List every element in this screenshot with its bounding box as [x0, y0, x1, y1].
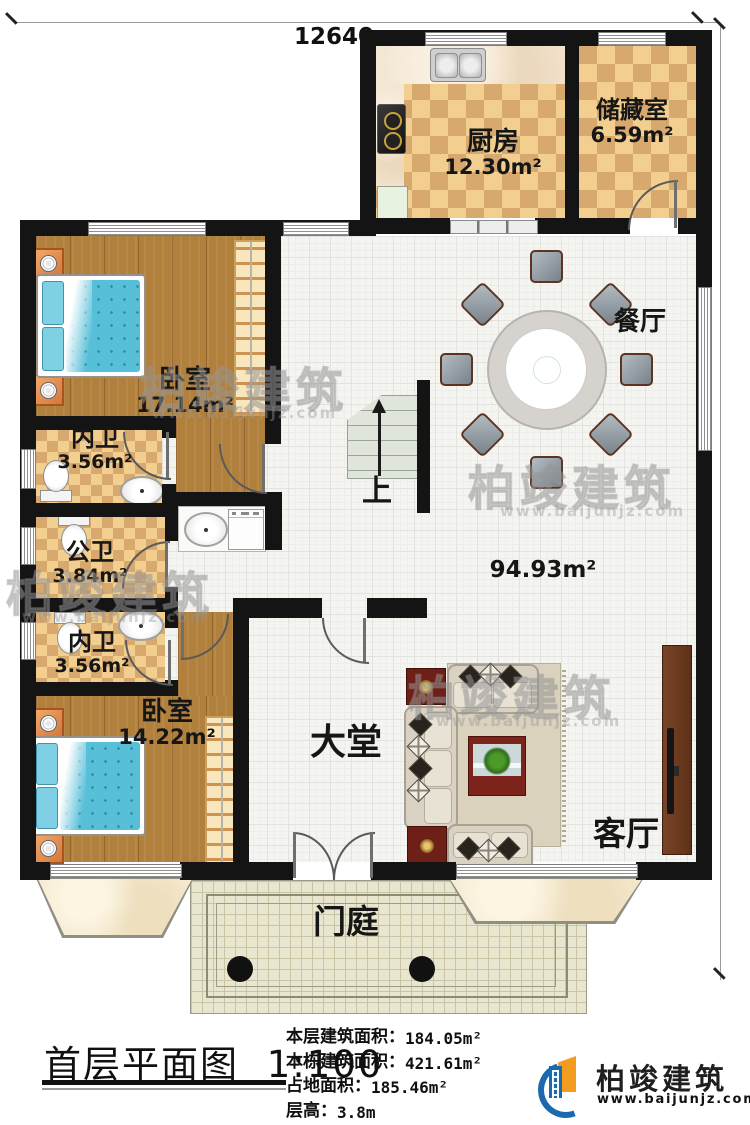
room-label-bath2: 公卫3.84m² — [40, 540, 140, 586]
window — [88, 222, 206, 236]
wall — [20, 862, 50, 880]
door-leaf — [363, 618, 366, 662]
up-arrow-shaft — [378, 412, 381, 476]
wall — [180, 862, 293, 880]
window — [456, 864, 638, 878]
door-leaf — [674, 180, 677, 228]
window — [698, 287, 712, 451]
wall — [360, 46, 376, 232]
chair — [530, 250, 563, 283]
bay-window-sill — [450, 879, 642, 921]
building-info: 本层建筑面积：184.05m² 本栋建筑面积：421.61m² 占地面积：185… — [286, 1026, 482, 1124]
washing-machine — [228, 509, 264, 550]
bay-window-sill — [38, 879, 192, 935]
dimension-line-top — [15, 22, 720, 23]
double-bed — [30, 736, 146, 836]
room-label-bedroom1: 卧室17.14m² — [130, 366, 240, 417]
window — [21, 622, 36, 660]
logo-url: www.baijunjz.com — [597, 1092, 750, 1107]
wall — [162, 492, 282, 506]
wall — [20, 598, 178, 612]
wall — [265, 236, 281, 444]
wall — [678, 218, 696, 234]
window — [21, 449, 36, 489]
wall — [579, 218, 630, 234]
kitchen-sink — [430, 48, 486, 82]
wall — [417, 380, 430, 513]
dining-table — [487, 310, 607, 430]
wall — [165, 612, 178, 628]
room-label-storage: 储藏室6.59m² — [577, 98, 687, 147]
bay-window-bedroom2 — [35, 876, 195, 938]
up-arrow-head — [372, 399, 386, 413]
door-leaf — [168, 640, 171, 684]
title-underline — [42, 1080, 286, 1085]
door-leaf — [181, 614, 184, 658]
door-leaf — [293, 832, 296, 878]
room-label-hall: 大堂 — [298, 724, 394, 763]
wall — [367, 598, 427, 618]
wall — [20, 503, 178, 517]
title-underline-thin — [42, 1088, 286, 1090]
nightstand — [32, 374, 64, 406]
chair — [620, 353, 653, 386]
floor-plan: 12640 17640 — [0, 0, 750, 1125]
info-row: 占地面积：185.46m² — [286, 1075, 482, 1100]
stove — [377, 104, 406, 154]
wall — [165, 517, 178, 541]
info-row: 本栋建筑面积：421.61m² — [286, 1051, 482, 1076]
door-leaf — [165, 541, 168, 587]
room-label-porch: 门庭 — [298, 904, 394, 940]
info-row: 本层建筑面积：184.05m² — [286, 1026, 482, 1051]
window — [21, 527, 36, 565]
chair — [530, 456, 563, 489]
wall — [535, 218, 579, 234]
window — [50, 864, 182, 878]
room-label-bath1: 内卫3.56m² — [45, 426, 145, 472]
wall — [20, 682, 178, 696]
window — [283, 222, 349, 236]
company-logo: 柏竣建筑 www.baijunjz.com — [538, 1052, 738, 1114]
door-leaf — [262, 444, 265, 492]
wall — [233, 598, 322, 618]
dimension-tick — [5, 12, 17, 24]
door-leaf — [370, 832, 373, 878]
room-label-bedroom2: 卧室14.22m² — [112, 698, 222, 749]
end-table — [406, 668, 446, 705]
wall — [371, 862, 456, 880]
porch-column — [409, 956, 435, 982]
logo-building-blue-icon — [549, 1066, 562, 1098]
sink — [184, 512, 228, 547]
wall — [265, 492, 282, 550]
window — [425, 32, 507, 46]
nightstand — [32, 832, 64, 864]
wall — [696, 46, 712, 880]
double-bed — [36, 274, 146, 378]
bay-window-living — [447, 876, 645, 924]
wall — [636, 862, 696, 880]
sliding-door — [450, 220, 538, 234]
room-label-dining: 餐厅 — [600, 308, 680, 336]
window — [598, 32, 666, 46]
dimension-line-right — [720, 24, 721, 980]
info-row: 层高：3.8m — [286, 1100, 482, 1125]
room-label-living: 客厅 — [578, 816, 674, 852]
nightstand — [32, 708, 64, 738]
end-table — [407, 826, 447, 865]
sink — [120, 476, 164, 506]
room-label-kitchen: 厨房12.30m² — [438, 128, 548, 179]
stairs-up-label: 上 — [362, 476, 392, 508]
coffee-table — [468, 736, 526, 796]
hall-area-label: 94.93m² — [488, 558, 598, 583]
room-label-bath3: 内卫3.56m² — [42, 630, 142, 676]
chair — [440, 353, 473, 386]
door-leaf — [166, 432, 169, 478]
porch-column — [227, 956, 253, 982]
wall — [233, 618, 249, 862]
